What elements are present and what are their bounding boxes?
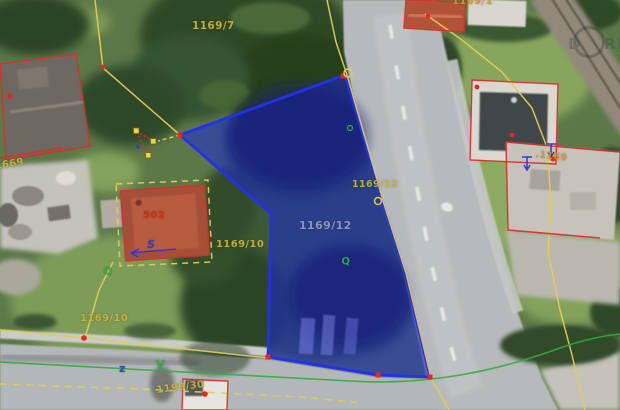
watermark-letters-ris: RIS bbox=[604, 35, 620, 53]
watermark-letter-d: D bbox=[568, 35, 580, 53]
aerial-imagery: D RIS bbox=[0, 0, 620, 410]
map-viewport[interactable]: D RIS 1169/7 1169/1 1169/13 1169/12 1169… bbox=[0, 0, 620, 410]
building-top-left bbox=[0, 54, 90, 160]
